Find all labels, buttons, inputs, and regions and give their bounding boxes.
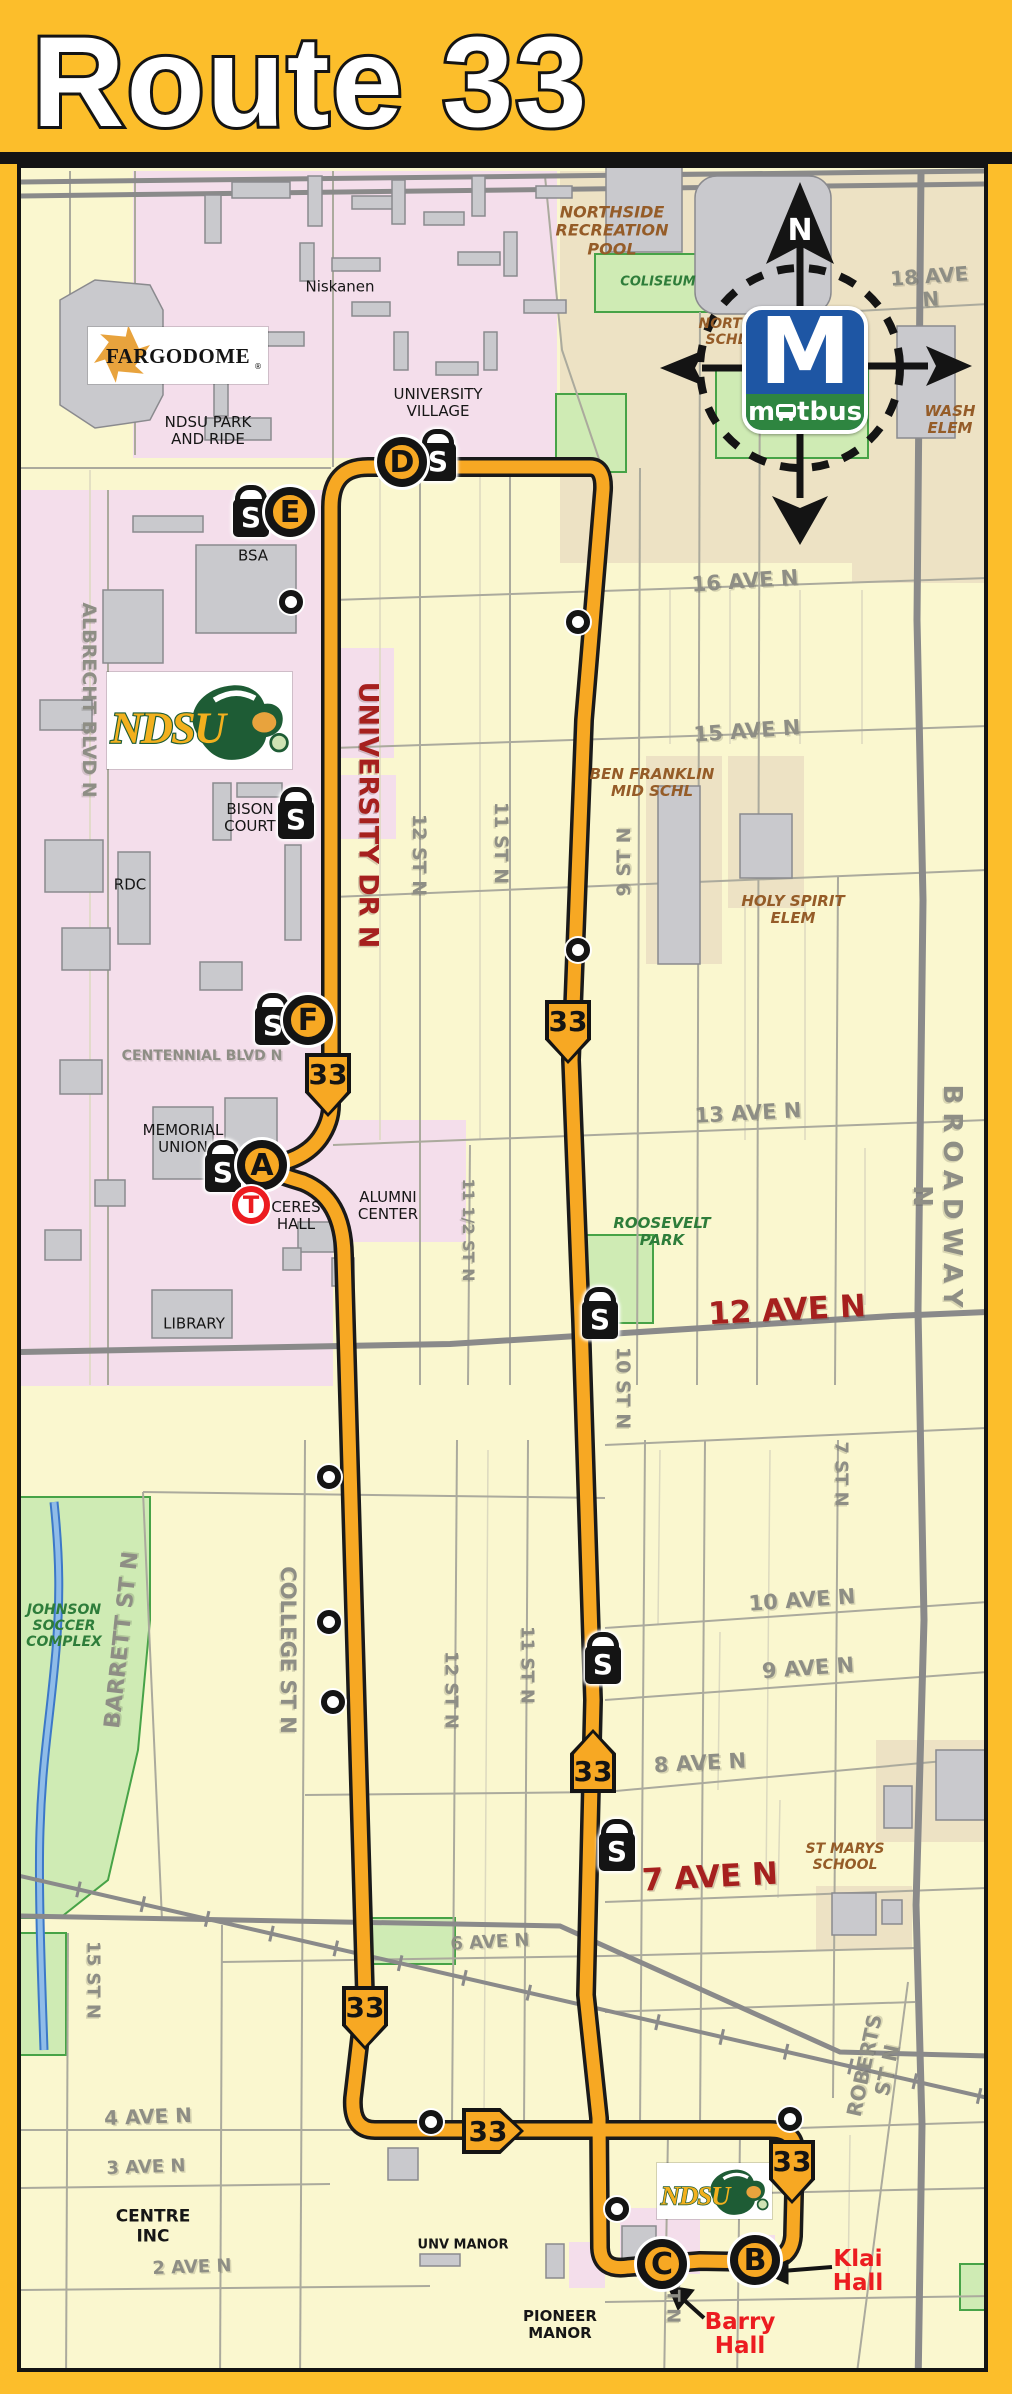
bus-shelter-icon: S (582, 1287, 618, 1339)
stop-e-marker: E (265, 487, 315, 537)
fargodome-logo: FARGODOME ® (88, 327, 268, 384)
header-divider (0, 152, 1012, 164)
place-bsa-label: BSA (238, 547, 268, 564)
place-johnson-soccer-label: JOHNSON SOCCER COMPLEX (26, 1602, 102, 1650)
bus-stop-dot (778, 2107, 802, 2131)
place-alumni-center-label: ALUMNI CENTER (358, 1189, 418, 1224)
street-broadway-n-label: BROADWAY N (906, 1085, 966, 1316)
poster-title: Route 33 (32, 11, 589, 152)
place-rdc-label: RDC (114, 876, 146, 893)
route-33-shield-up: 33 (570, 1729, 616, 1793)
place-holy-spirit-label: HOLY SPIRIT ELEM (741, 893, 844, 928)
stop-d-marker: D (377, 437, 427, 487)
street-6-ave-n-label: 6 AVE N (450, 1931, 530, 1956)
place-bison-court-label: BISON COURT (224, 801, 276, 836)
ben-franklin-building (658, 786, 700, 964)
bus-stop-dot (317, 1465, 341, 1489)
place-ben-franklin-label: BEN FRANKLIN MID SCHL (590, 766, 715, 801)
street-11-st-n-upper-label: 11 ST N (489, 802, 511, 884)
bus-shelter-icon: S (599, 1819, 635, 1871)
place-unv-manor-label: UNV MANOR (418, 2239, 509, 2254)
place-ceres-hall-label: CERES HALL (271, 1199, 320, 1234)
map-base-layer: N (17, 164, 988, 2372)
svg-text:®: ® (254, 362, 262, 371)
street-4-ave-n-label: 4 AVE N (104, 2104, 193, 2130)
street-15-st-n-label: 15 ST N (82, 1941, 103, 2019)
ndsu-logo-south: NDSU (657, 2163, 772, 2219)
bus-stop-dot (566, 938, 590, 962)
bus-stop-dot (279, 590, 303, 614)
route-33-shield-down: 33 (342, 1986, 388, 2050)
bus-stop-dot (419, 2110, 443, 2134)
bus-shelter-icon: S (585, 1632, 621, 1684)
route-33-shield-down: 33 (769, 2140, 815, 2204)
map-canvas: N (17, 164, 988, 2372)
street-7-ave-n-label: 7 AVE N (641, 1857, 779, 1900)
matbus-logo: M mtbus (742, 306, 868, 434)
street-college-st-n-label: COLLEGE ST N (276, 1566, 300, 1734)
place-coliseum-label: COLISEUM (620, 276, 695, 291)
street-3-ave-n-label: 3 AVE N (106, 2156, 186, 2179)
street-18-ave-n-label: 18 AVE N (887, 262, 972, 314)
street-university-dr-n-label: UNIVERSITY DR N (352, 682, 383, 949)
street-2-ave-n-label: 2 AVE N (152, 2256, 232, 2279)
route-33-shield-right: 33 (462, 2108, 524, 2154)
street-centennial-label: CENTENNIAL BLVD N (122, 1048, 283, 1064)
place-university-village-label: UNIVERSITY VILLAGE (393, 386, 482, 421)
bus-stop-dot (321, 1690, 345, 1714)
place-niskanen-label: Niskanen (305, 278, 374, 295)
place-pioneer-manor-label: PIONEER MANOR (523, 2308, 597, 2343)
place-roosevelt-park-label: ROOSEVELT PARK (613, 1215, 710, 1250)
stop-c-marker: C (637, 2239, 687, 2289)
street-7-st-n-label: 7 ST N (830, 1441, 851, 1506)
svg-text:NDSU: NDSU (660, 2180, 732, 2210)
place-library-label: LIBRARY (163, 1315, 225, 1332)
bus-stop-dot (317, 1610, 341, 1634)
bus-stop-dot (566, 610, 590, 634)
street-12-st-n-upper-label: 12 ST N (407, 814, 429, 896)
bus-shelter-icon: S (278, 787, 314, 839)
street-11half-st-n-label: 11 1/2 ST N (459, 1179, 477, 1282)
transfer-point-marker: T (232, 1186, 270, 1224)
stop-a-marker: A (237, 1140, 287, 1190)
bus-stop-dot (605, 2197, 629, 2221)
poi-klai-hall-label: Klai Hall (833, 2247, 884, 2295)
street-9-st-n-label: 9 ST N (614, 828, 636, 897)
street-10-st-n-label: 10 ST N (611, 1347, 633, 1429)
route-33-shield-down: 33 (305, 1053, 351, 1117)
place-st-marys-label: ST MARYS SCHOOL (806, 1841, 885, 1873)
bus-icon (776, 404, 796, 421)
bus-shelter-icon: S (233, 485, 269, 537)
matbus-wordmark: mtbus (746, 394, 864, 430)
bus-shelter-icon: S (205, 1140, 241, 1192)
place-wash-elem-label: WASH ELEM (925, 403, 976, 438)
street-12-st-n-lower-label: 12 ST N (440, 1651, 461, 1729)
place-ndsu-park-and-ride-label: NDSU PARK AND RIDE (165, 414, 252, 449)
street-albrecht-label: ALBRECHT BLVD N (77, 602, 99, 797)
svg-text:FARGODOME: FARGODOME (106, 344, 250, 368)
route-33-shield-down: 33 (545, 1000, 591, 1064)
poi-barry-hall-label: Barry Hall (705, 2310, 776, 2358)
holy-spirit-building (740, 814, 792, 878)
street-8-ave-n-label: 8 AVE N (653, 1749, 746, 1778)
stop-f-marker: F (283, 995, 333, 1045)
route-map-poster: Route 33 (0, 0, 1012, 2394)
poster-header: Route 33 (0, 0, 1012, 152)
ndsu-logo: NDSU (107, 672, 292, 769)
place-centre-inc-label: CENTRE INC (116, 2207, 191, 2246)
stop-b-marker: B (730, 2235, 780, 2285)
svg-text:NDSU: NDSU (110, 703, 228, 753)
street-11-st-n-lower-label: 11 ST N (516, 1626, 537, 1704)
compass-north-label: N (787, 213, 812, 248)
place-northside-pool-label: NORTHSIDE RECREATION POOL (556, 203, 669, 258)
matbus-m-mark: M (746, 306, 864, 405)
